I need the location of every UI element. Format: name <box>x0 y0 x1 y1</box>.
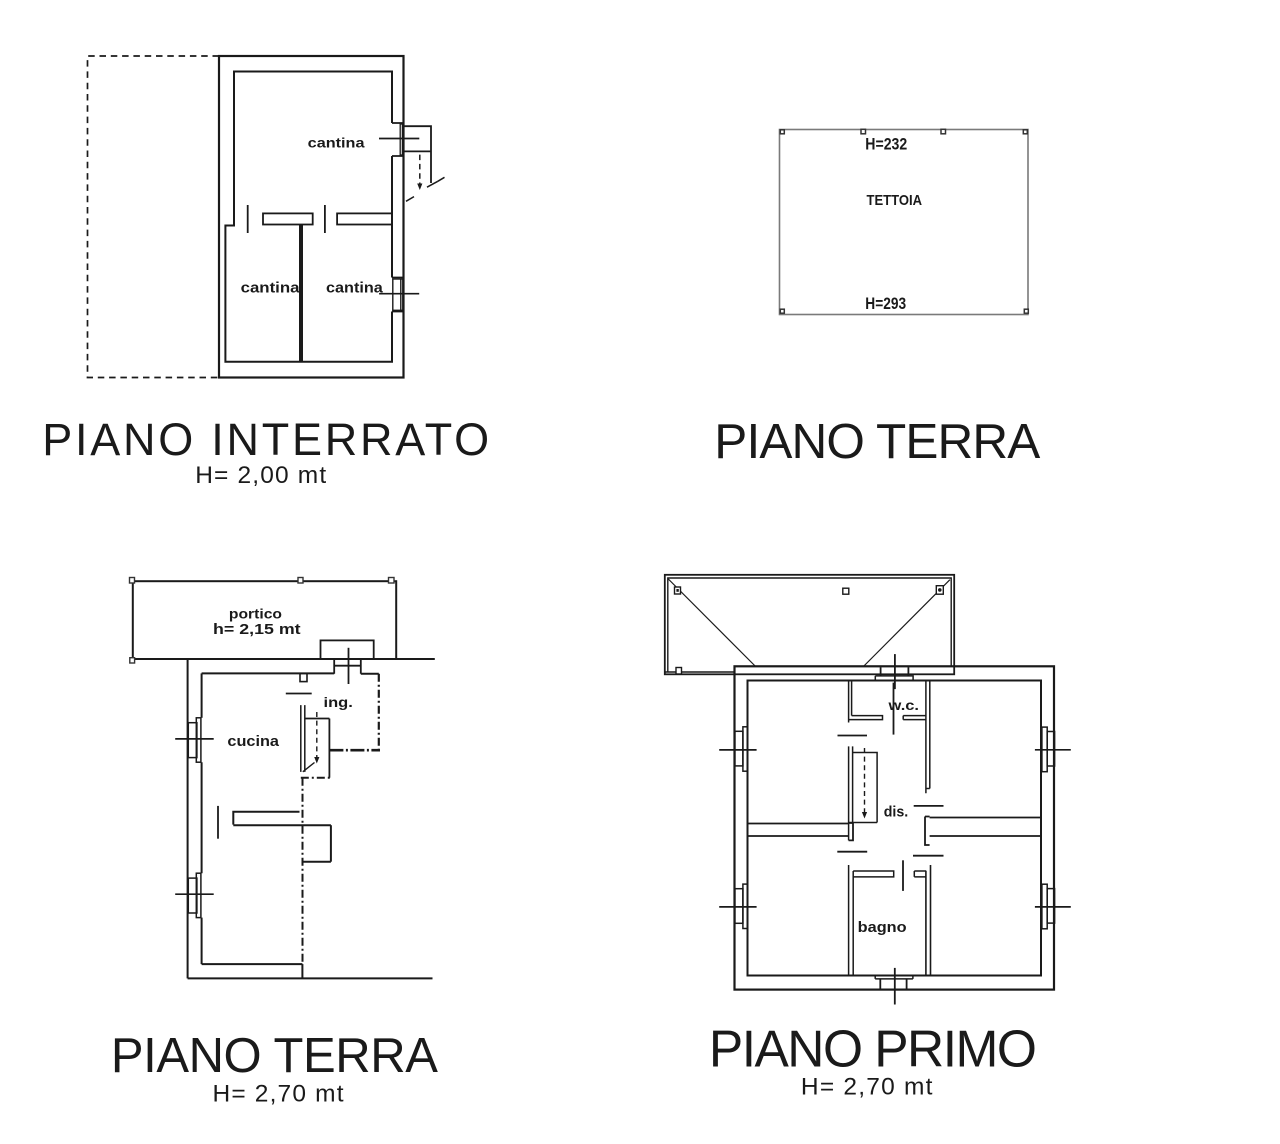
svg-text:cucina: cucina <box>227 734 280 750</box>
svg-text:cantina: cantina <box>241 281 301 297</box>
svg-text:H=232: H=232 <box>865 135 907 153</box>
svg-text:H= 2,70 mt: H= 2,70 mt <box>801 1073 933 1100</box>
svg-text:bagno: bagno <box>858 919 907 936</box>
svg-text:dis.: dis. <box>884 805 909 821</box>
svg-text:PIANO PRIMO: PIANO PRIMO <box>709 1019 1037 1077</box>
svg-text:ing.: ing. <box>324 694 353 710</box>
svg-text:h= 2,15 mt: h= 2,15 mt <box>213 621 301 638</box>
svg-text:portico: portico <box>229 605 282 621</box>
svg-text:H= 2,70 mt: H= 2,70 mt <box>213 1081 344 1108</box>
svg-text:cantina: cantina <box>326 281 384 297</box>
svg-text:H= 2,00 mt: H= 2,00 mt <box>195 462 326 489</box>
svg-text:H=293: H=293 <box>865 295 906 313</box>
svg-text:PIANO TERRA: PIANO TERRA <box>111 1029 438 1083</box>
svg-text:w.c.: w.c. <box>887 698 919 713</box>
svg-text:TETTOIA: TETTOIA <box>867 192 923 209</box>
svg-text:cantina: cantina <box>308 136 365 151</box>
svg-text:PIANO TERRA: PIANO TERRA <box>714 414 1040 469</box>
